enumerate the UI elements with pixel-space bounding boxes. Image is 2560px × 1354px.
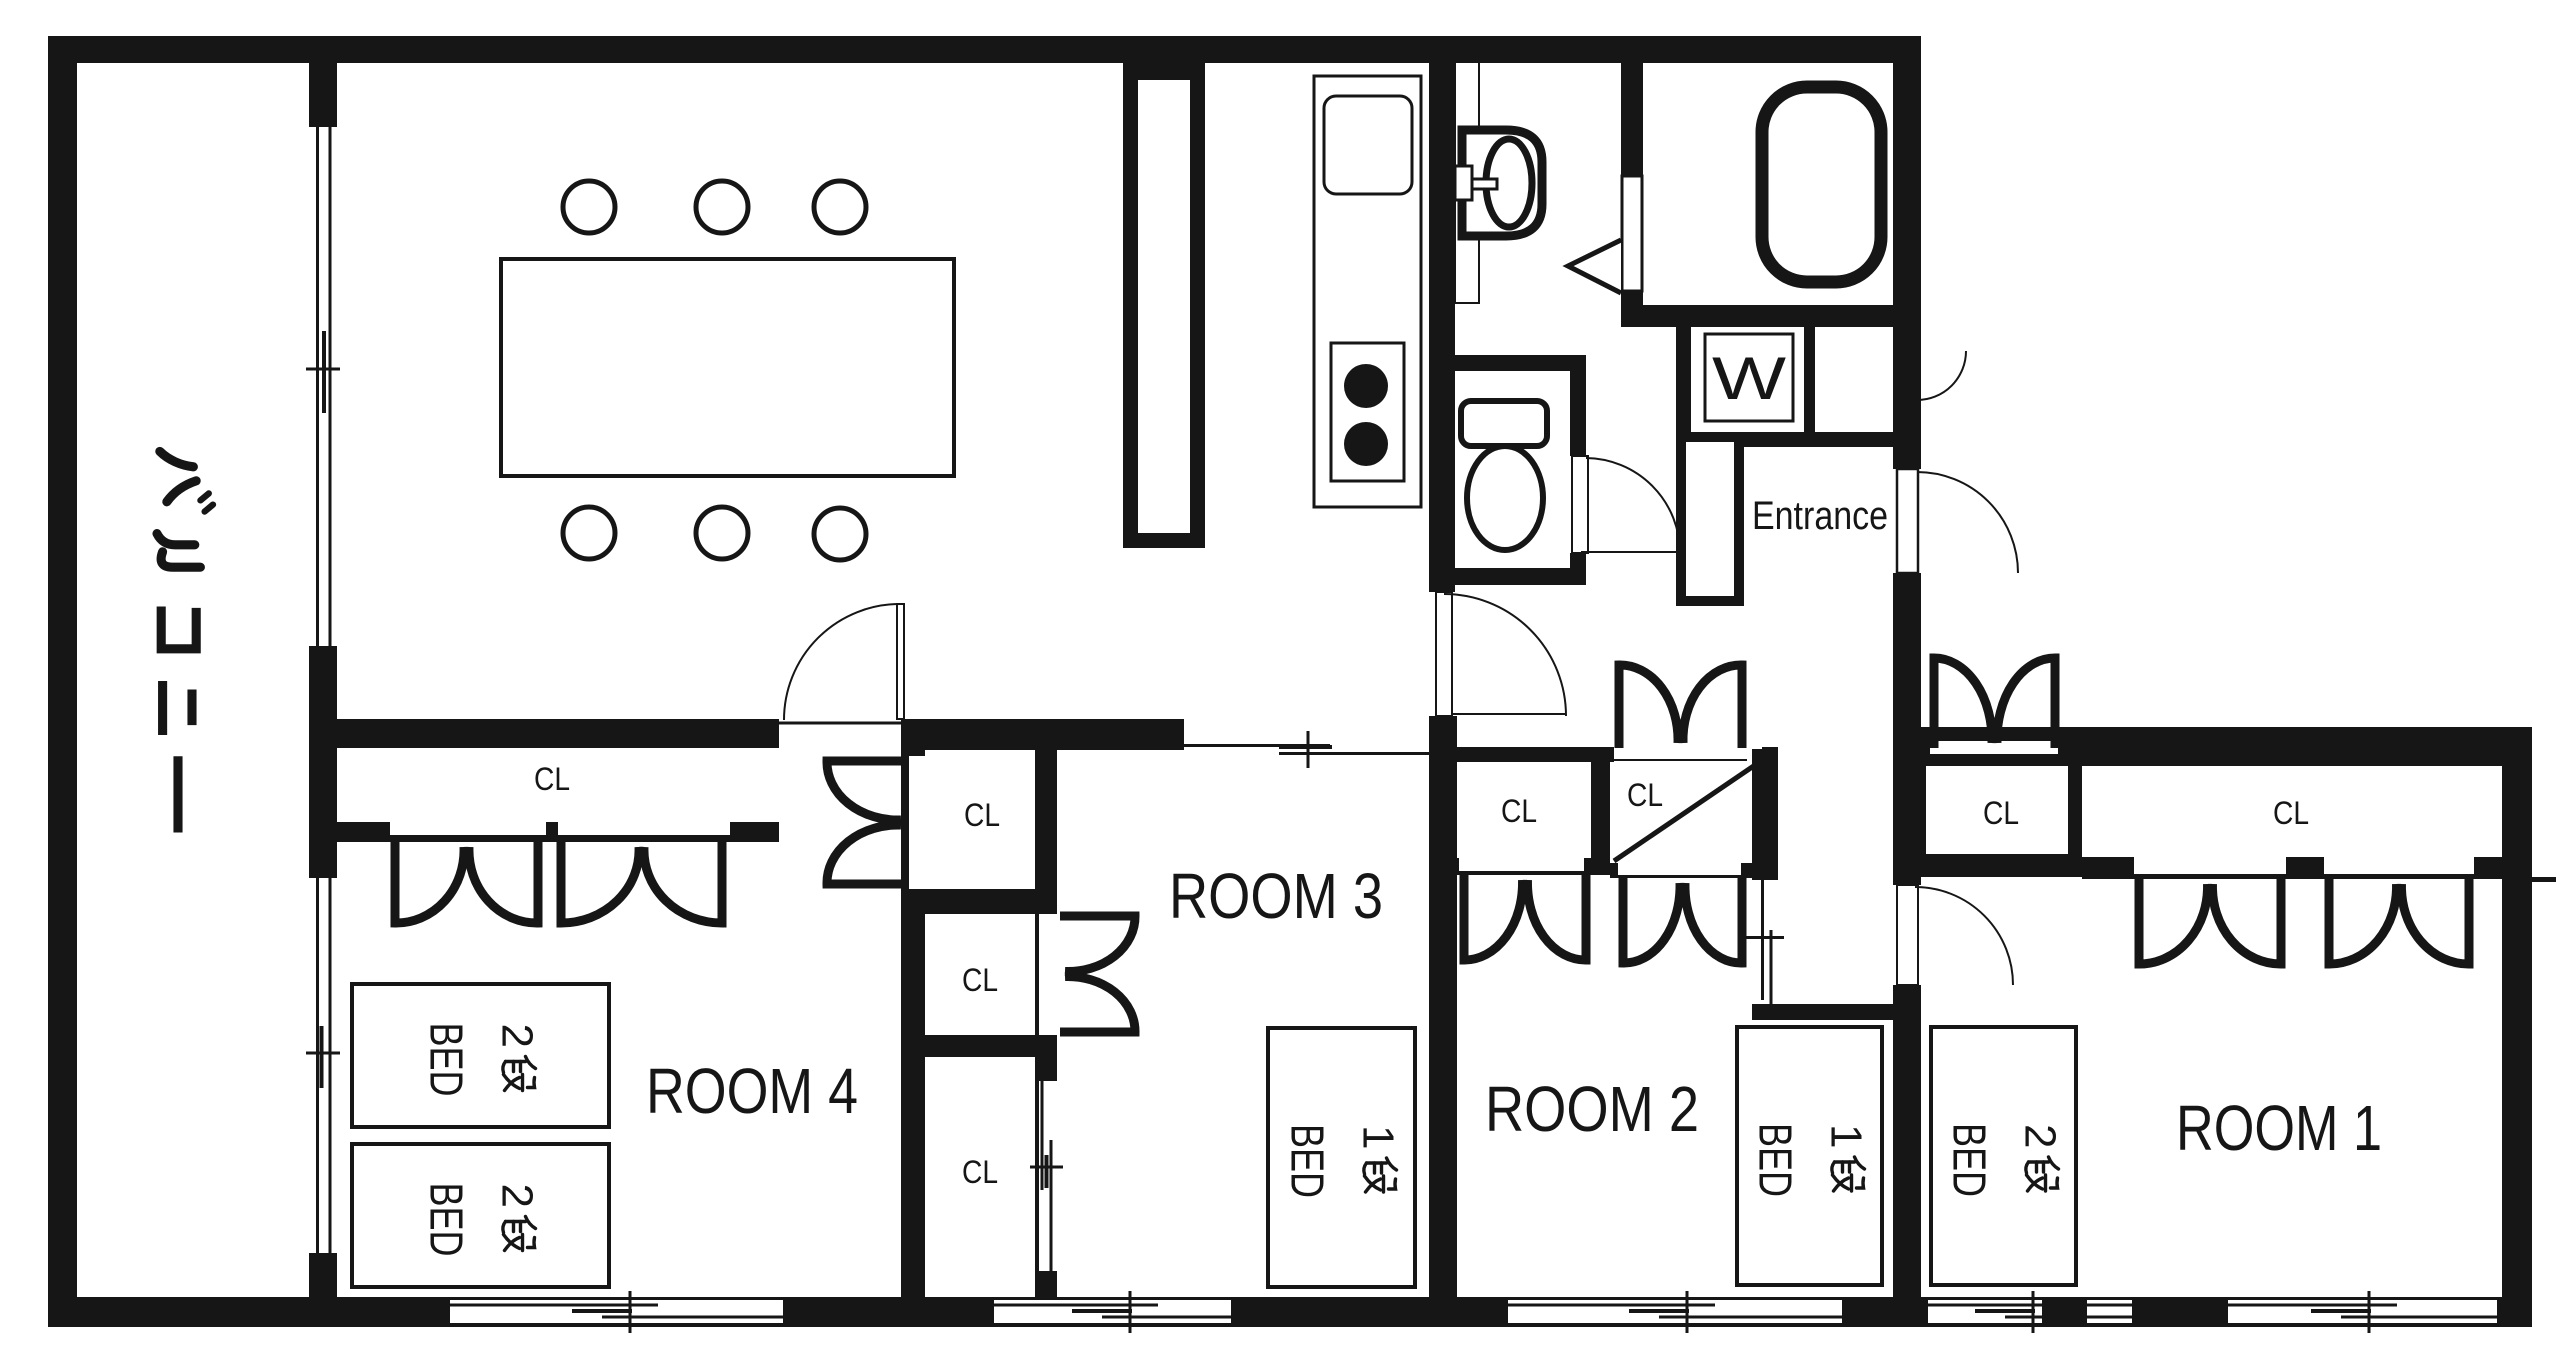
svg-text:ROOM 1: ROOM 1: [2176, 1092, 2382, 1164]
svg-text:CL: CL: [1627, 777, 1663, 813]
svg-text:1: 1: [1822, 1124, 1871, 1148]
svg-text:CL: CL: [962, 962, 998, 998]
svg-text:BED: BED: [1944, 1123, 1996, 1197]
svg-text:BED: BED: [421, 1023, 473, 1097]
svg-text:CL: CL: [1501, 793, 1537, 829]
svg-text:BED: BED: [421, 1183, 473, 1257]
svg-text:2: 2: [493, 1184, 542, 1208]
svg-text:CL: CL: [2273, 795, 2309, 831]
svg-text:CL: CL: [1983, 795, 2019, 831]
svg-text:ROOM 2: ROOM 2: [1485, 1073, 1699, 1145]
svg-text:BED: BED: [1282, 1124, 1334, 1198]
svg-text:BED: BED: [1750, 1123, 1802, 1197]
svg-text:CL: CL: [962, 1154, 998, 1190]
svg-text:1: 1: [1354, 1125, 1403, 1149]
svg-text:2: 2: [2016, 1124, 2065, 1148]
svg-text:ROOM 4: ROOM 4: [646, 1055, 858, 1127]
svg-text:2: 2: [493, 1024, 542, 1048]
svg-text:W: W: [1712, 345, 1786, 412]
svg-text:CL: CL: [534, 761, 570, 797]
svg-text:Entrance: Entrance: [1752, 494, 1888, 538]
svg-text:CL: CL: [964, 797, 1000, 833]
svg-text:ROOM 3: ROOM 3: [1169, 860, 1383, 932]
